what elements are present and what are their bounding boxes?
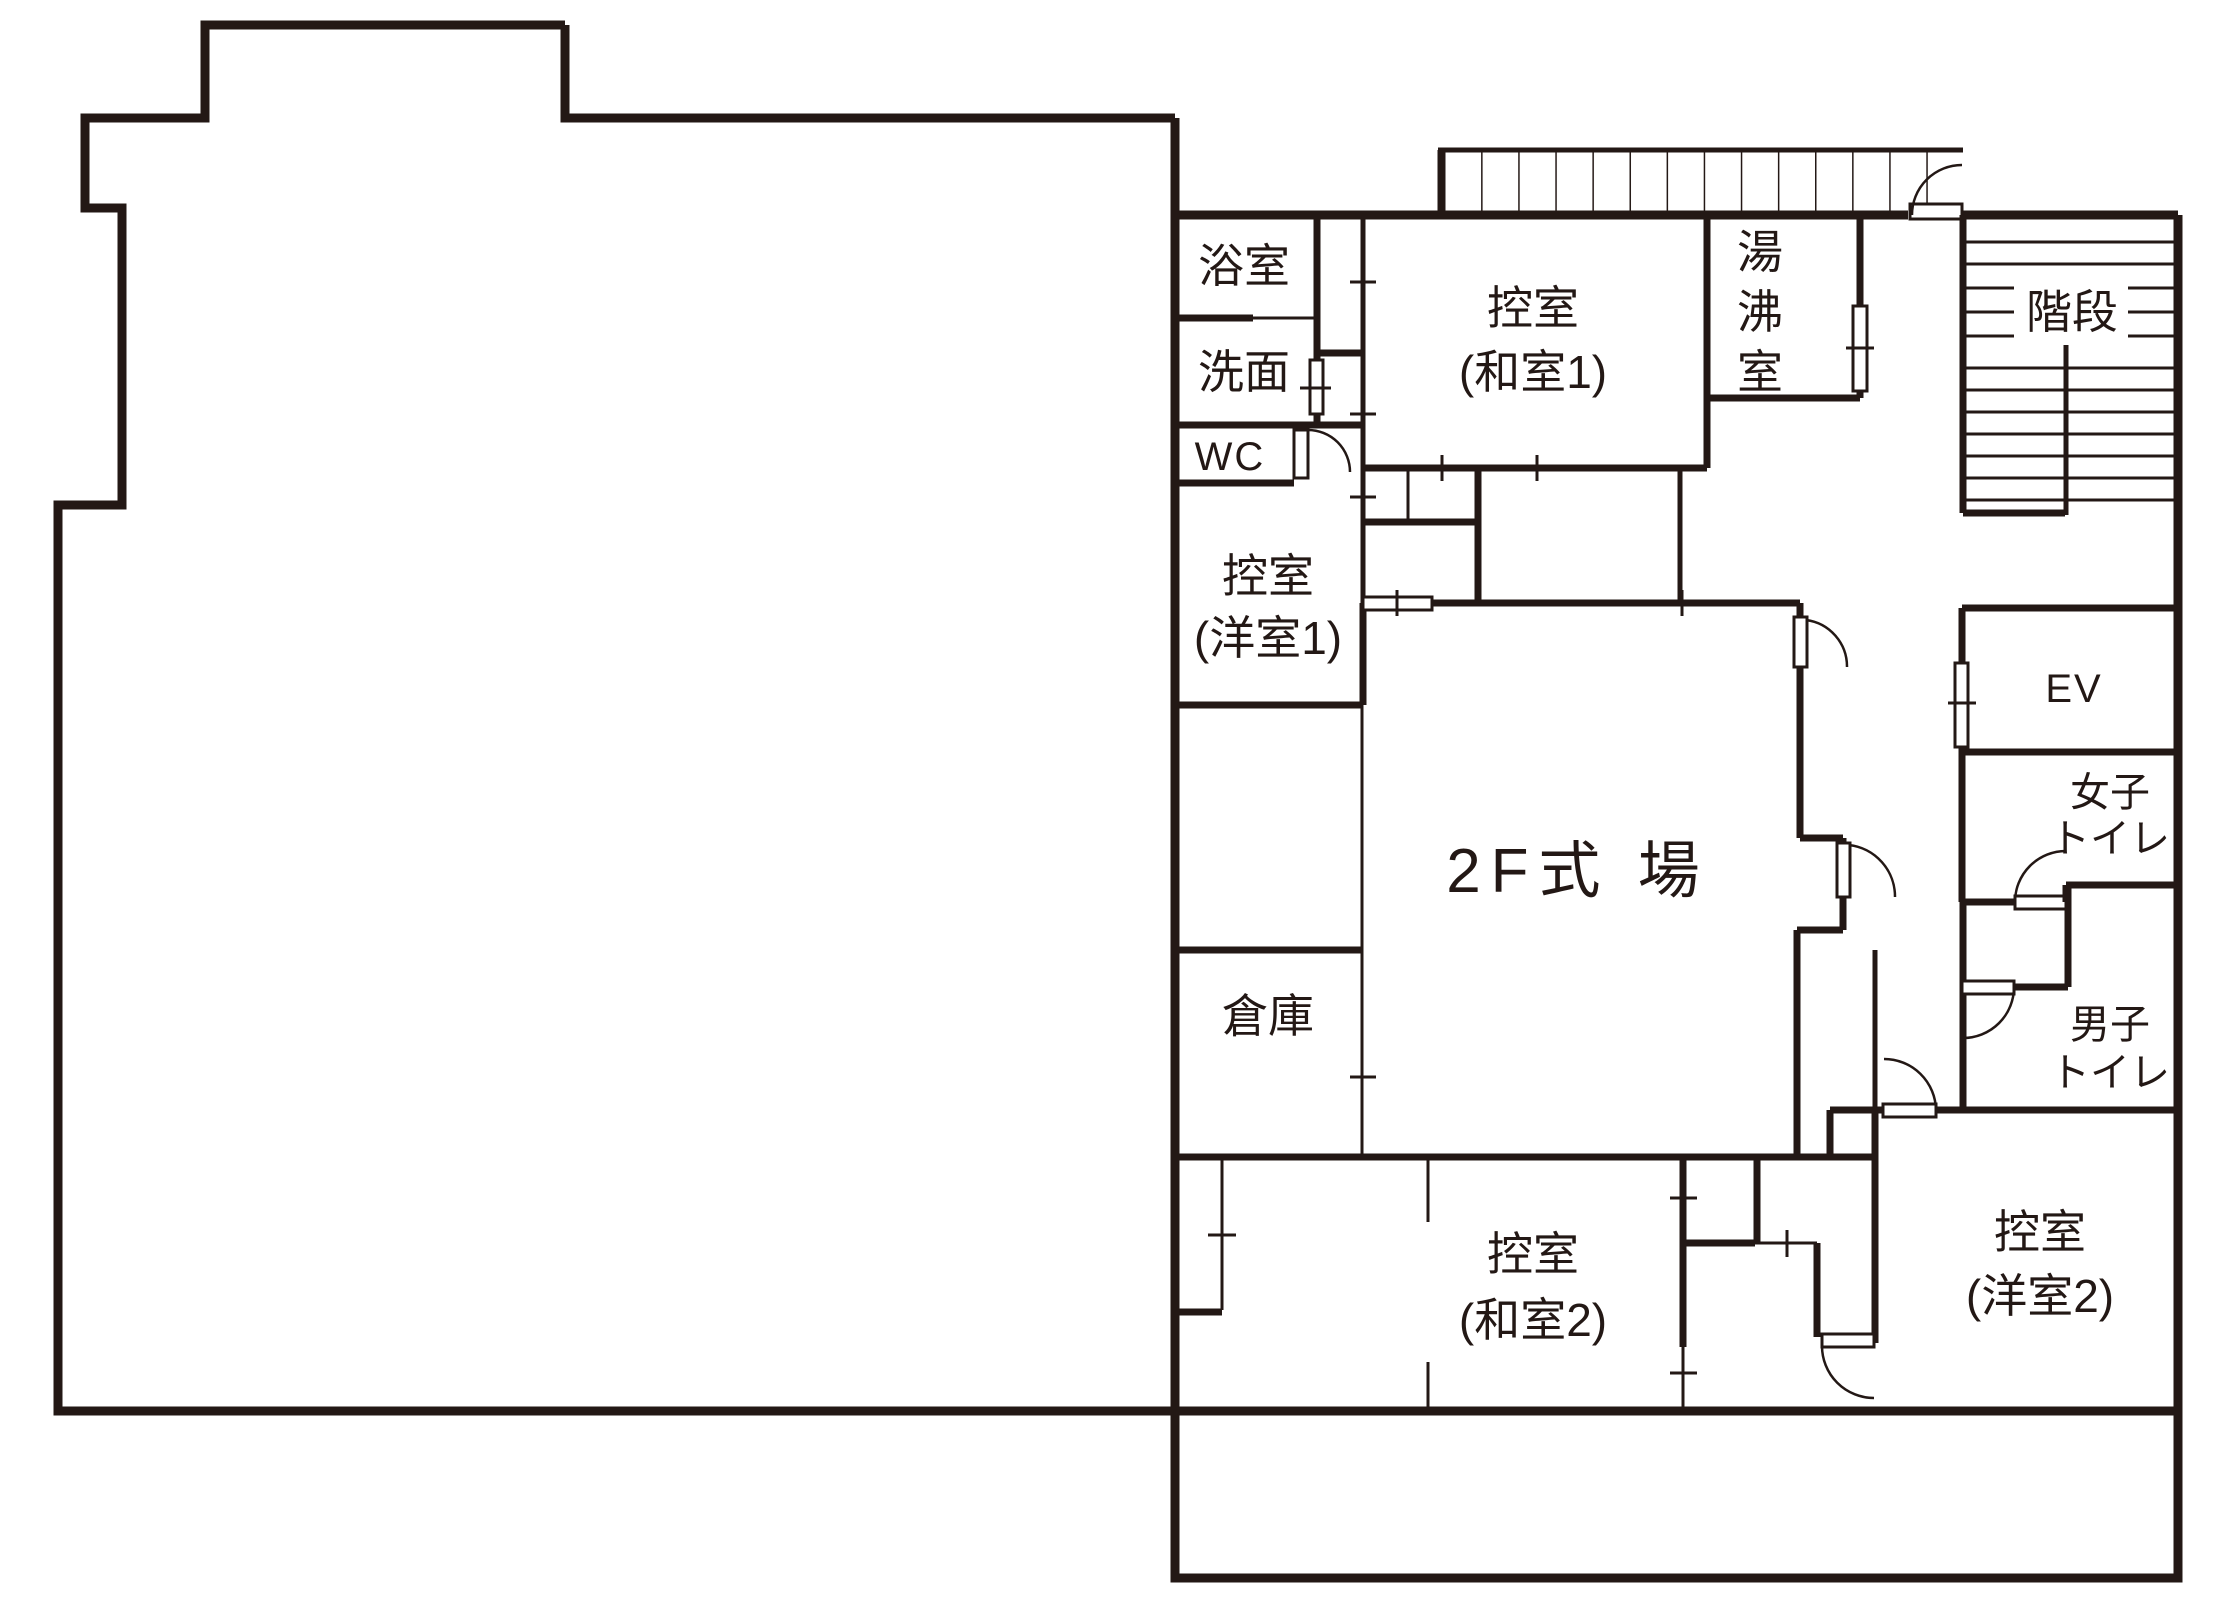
room-label-stairs: 階段 [2026,286,2118,338]
room-label-mens-toilet-line1: 男子 [2070,1003,2150,1047]
japanese-room1-walls [1363,215,1707,603]
outer-building-outline [58,25,1175,1411]
hall-top-wall [1363,590,1800,616]
room-label-waiting-western2-line1: 控室 [1994,1206,2086,1258]
room-label-waiting-western2-line2: (洋室2) [1966,1270,2114,1322]
room-label-waiting-western1-line1: 控室 [1222,550,1314,602]
room-label-womens-toilet-line2: トイレ [2050,817,2170,861]
room-label-wc: WC [1195,435,1266,479]
stairs-walls [1963,215,2066,515]
door-swing-icon [1822,1346,1874,1398]
floor-plan-svg: 浴室 洗面 WC 控室 (洋室1) 控室 (和室1) 湯 沸 室 階段 EV 女… [0,0,2217,1620]
hall-right-walls [1794,603,1895,1343]
room-label-mens-toilet-line2: トイレ [2050,1051,2170,1095]
room-label-elevator: EV [2045,667,2102,711]
sliding-door-icon [1955,663,1968,747]
floor-plan-page: 浴室 洗面 WC 控室 (洋室1) 控室 (和室1) 湯 沸 室 階段 EV 女… [0,0,2217,1620]
room-label-ceremony-hall: 2F式 場 [1446,837,1710,906]
door-swing-icon [1849,845,1895,897]
room-label-waiting-japanese2-line2: (和室2) [1459,1294,1607,1346]
room-label-bath: 浴室 [1198,240,1290,292]
door-swing-icon [1884,1059,1936,1110]
japanese-room2-walls [1175,1157,1874,1411]
door-swing-icon [1806,620,1847,667]
veranda-hatch [1438,150,1963,212]
wc-door [1294,430,1350,478]
door-swing-icon [1308,430,1350,472]
stairs-treads [1966,242,2175,500]
room-label-hot-water-char1: 湯 [1737,226,1783,278]
hot-water-room-walls [1707,215,1874,398]
room-label-womens-toilet-line1: 女子 [2070,771,2150,815]
room-label-waiting-japanese1-line1: 控室 [1487,282,1579,334]
room-label-washroom: 洗面 [1198,346,1290,398]
room-label-waiting-japanese1-line2: (和室1) [1459,346,1607,398]
room-label-storage: 倉庫 [1222,990,1314,1042]
room-label-waiting-japanese2-line1: 控室 [1487,1228,1579,1280]
room-label-hot-water-char2: 沸 [1737,286,1783,338]
room-label-waiting-western1-line2: (洋室1) [1194,612,1342,664]
room-label-hot-water-char3: 室 [1737,346,1783,398]
